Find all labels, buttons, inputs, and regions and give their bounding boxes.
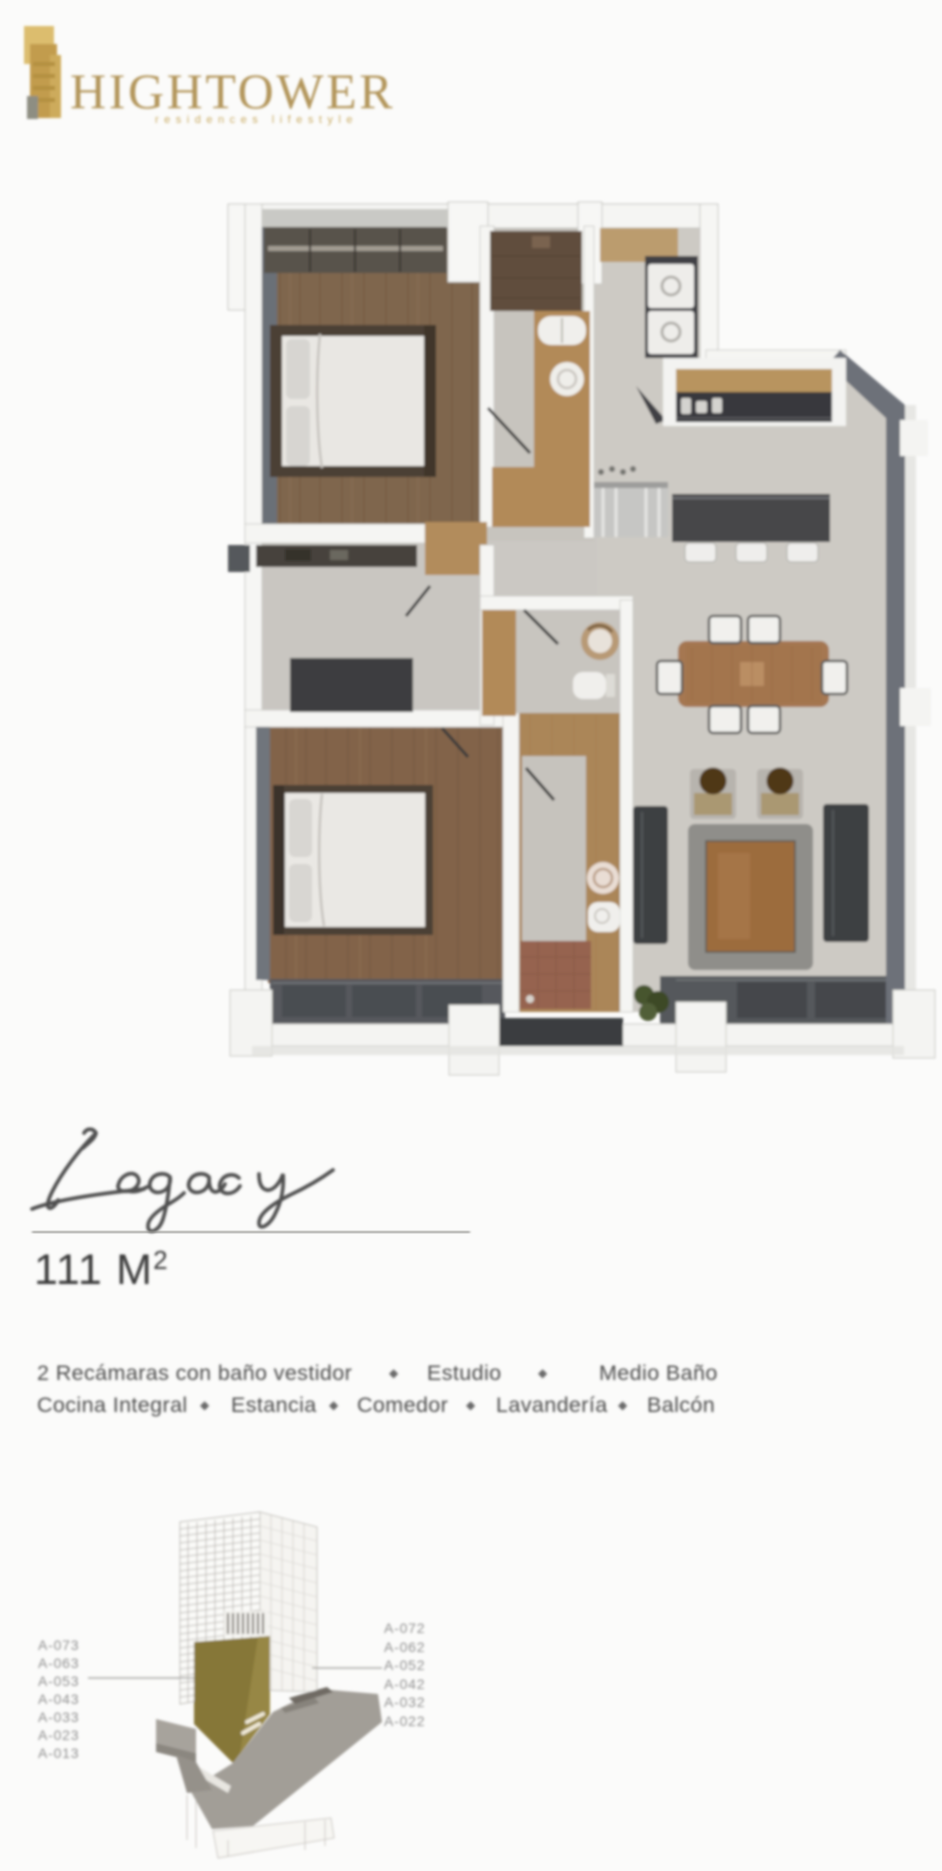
svg-text:Estancia: Estancia [231, 1393, 317, 1417]
svg-text:◆: ◆ [618, 1398, 628, 1412]
svg-text:Medio Baño: Medio Baño [599, 1361, 718, 1385]
svg-text:Balcón: Balcón [647, 1393, 715, 1417]
svg-text:◆: ◆ [200, 1398, 210, 1412]
svg-text:A-033: A-033 [38, 1709, 79, 1725]
svg-text:◆: ◆ [466, 1398, 476, 1412]
svg-text:◆: ◆ [329, 1398, 339, 1412]
svg-text:A-043: A-043 [38, 1691, 79, 1707]
svg-text:residences lifestyle: residences lifestyle [155, 114, 358, 126]
svg-text:A-062: A-062 [384, 1639, 425, 1655]
svg-text:A-072: A-072 [384, 1620, 425, 1636]
svg-text:A-073: A-073 [38, 1637, 79, 1653]
svg-text:A-022: A-022 [384, 1713, 425, 1729]
svg-text:2 Recámaras con baño vestidor: 2 Recámaras con baño vestidor [37, 1361, 352, 1385]
svg-text:A-032: A-032 [384, 1694, 425, 1710]
svg-text:A-052: A-052 [384, 1657, 425, 1673]
svg-text:A-063: A-063 [38, 1655, 79, 1671]
svg-text:Cocina Integral: Cocina Integral [37, 1393, 188, 1417]
svg-text:111 M2: 111 M2 [34, 1245, 169, 1294]
svg-text:A-042: A-042 [384, 1676, 425, 1692]
svg-text:Lavandería: Lavandería [496, 1393, 608, 1417]
svg-text:A-053: A-053 [38, 1673, 79, 1689]
svg-text:A-013: A-013 [38, 1745, 79, 1761]
svg-text:A-023: A-023 [38, 1727, 79, 1743]
svg-text:Comedor: Comedor [357, 1393, 448, 1417]
svg-text:Estudio: Estudio [427, 1361, 502, 1385]
svg-text:◆: ◆ [538, 1366, 548, 1380]
svg-text:HIGHTOWER: HIGHTOWER [70, 63, 395, 119]
svg-text:◆: ◆ [389, 1366, 399, 1380]
